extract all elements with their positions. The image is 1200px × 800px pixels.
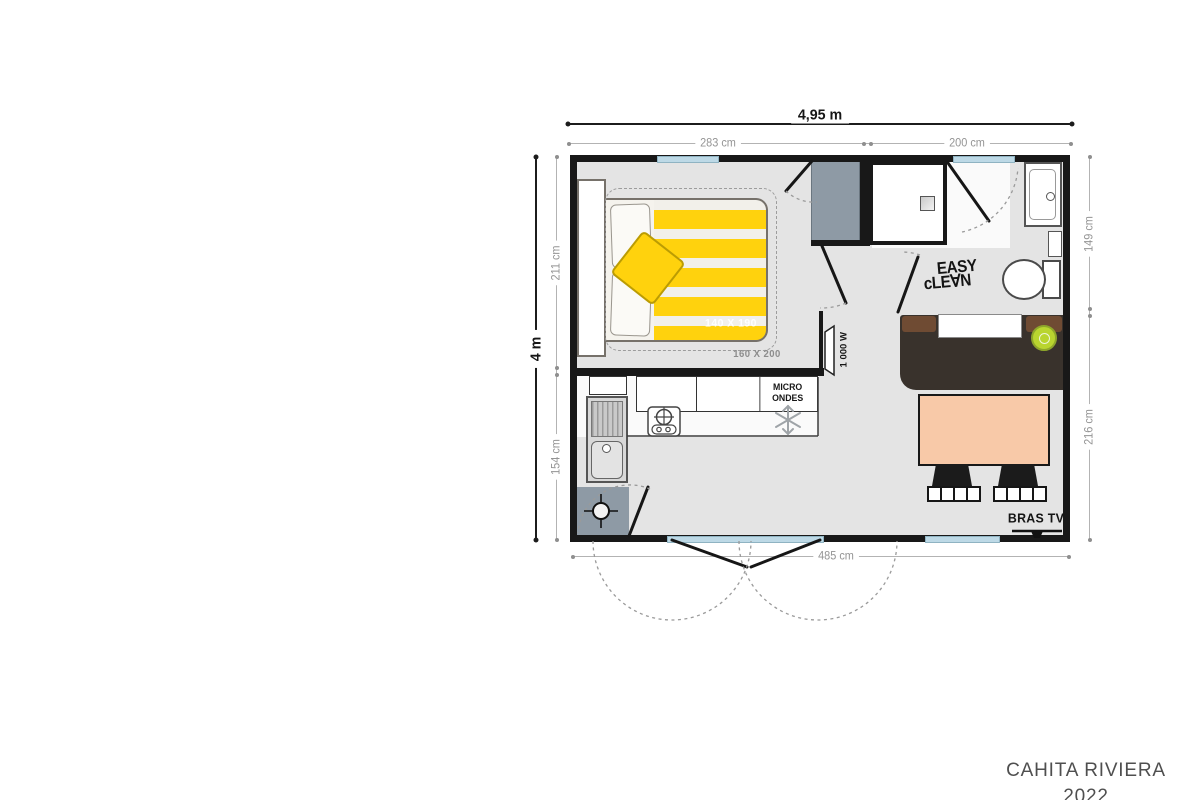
wall-stub [819,311,823,376]
easy-clean-line2: cLE∀N [923,271,979,293]
dim-right-upper: 149 cm [1083,211,1097,256]
dim-bottom: 485 cm [813,550,858,564]
easy-clean-logo: EASY cLE∀N [922,257,979,293]
dim-overall-width: 4,95 m [791,107,849,124]
dim-top-left: 283 cm [695,137,740,151]
french-door-right-leaf [751,540,820,567]
bed-size-label: 140 X 190 [705,319,757,330]
window [953,156,1015,163]
heater-label: 1 000 W [839,327,849,373]
plan-title: CAHITA RIVIERA 2022 [976,758,1196,800]
french-door-glass [667,536,824,543]
plan-title-year: 2022 [976,784,1196,800]
window [925,536,1000,543]
dim-left-lower: 154 cm [550,434,564,479]
tv-bracket-label: BRAS TV [1008,512,1064,525]
dimension-line [556,157,557,541]
french-door-left-leaf [672,540,747,567]
bed-clearance-label: 160 X 200 [733,350,781,360]
bedroom-kitchen-wall [570,368,824,376]
floorplan-canvas: 140 X 190 160 X 200 EASY cLE∀N MICRO OND… [0,0,1200,800]
window [657,156,719,163]
partition-wall [860,155,870,246]
dim-top-right: 200 cm [944,137,989,151]
dim-right-lower: 216 cm [1083,404,1097,449]
dimension-line [569,143,1071,144]
dim-overall-depth: 4 m [528,330,545,368]
dim-left-upper: 211 cm [550,241,564,286]
plan-title-model: CAHITA RIVIERA [976,758,1196,784]
